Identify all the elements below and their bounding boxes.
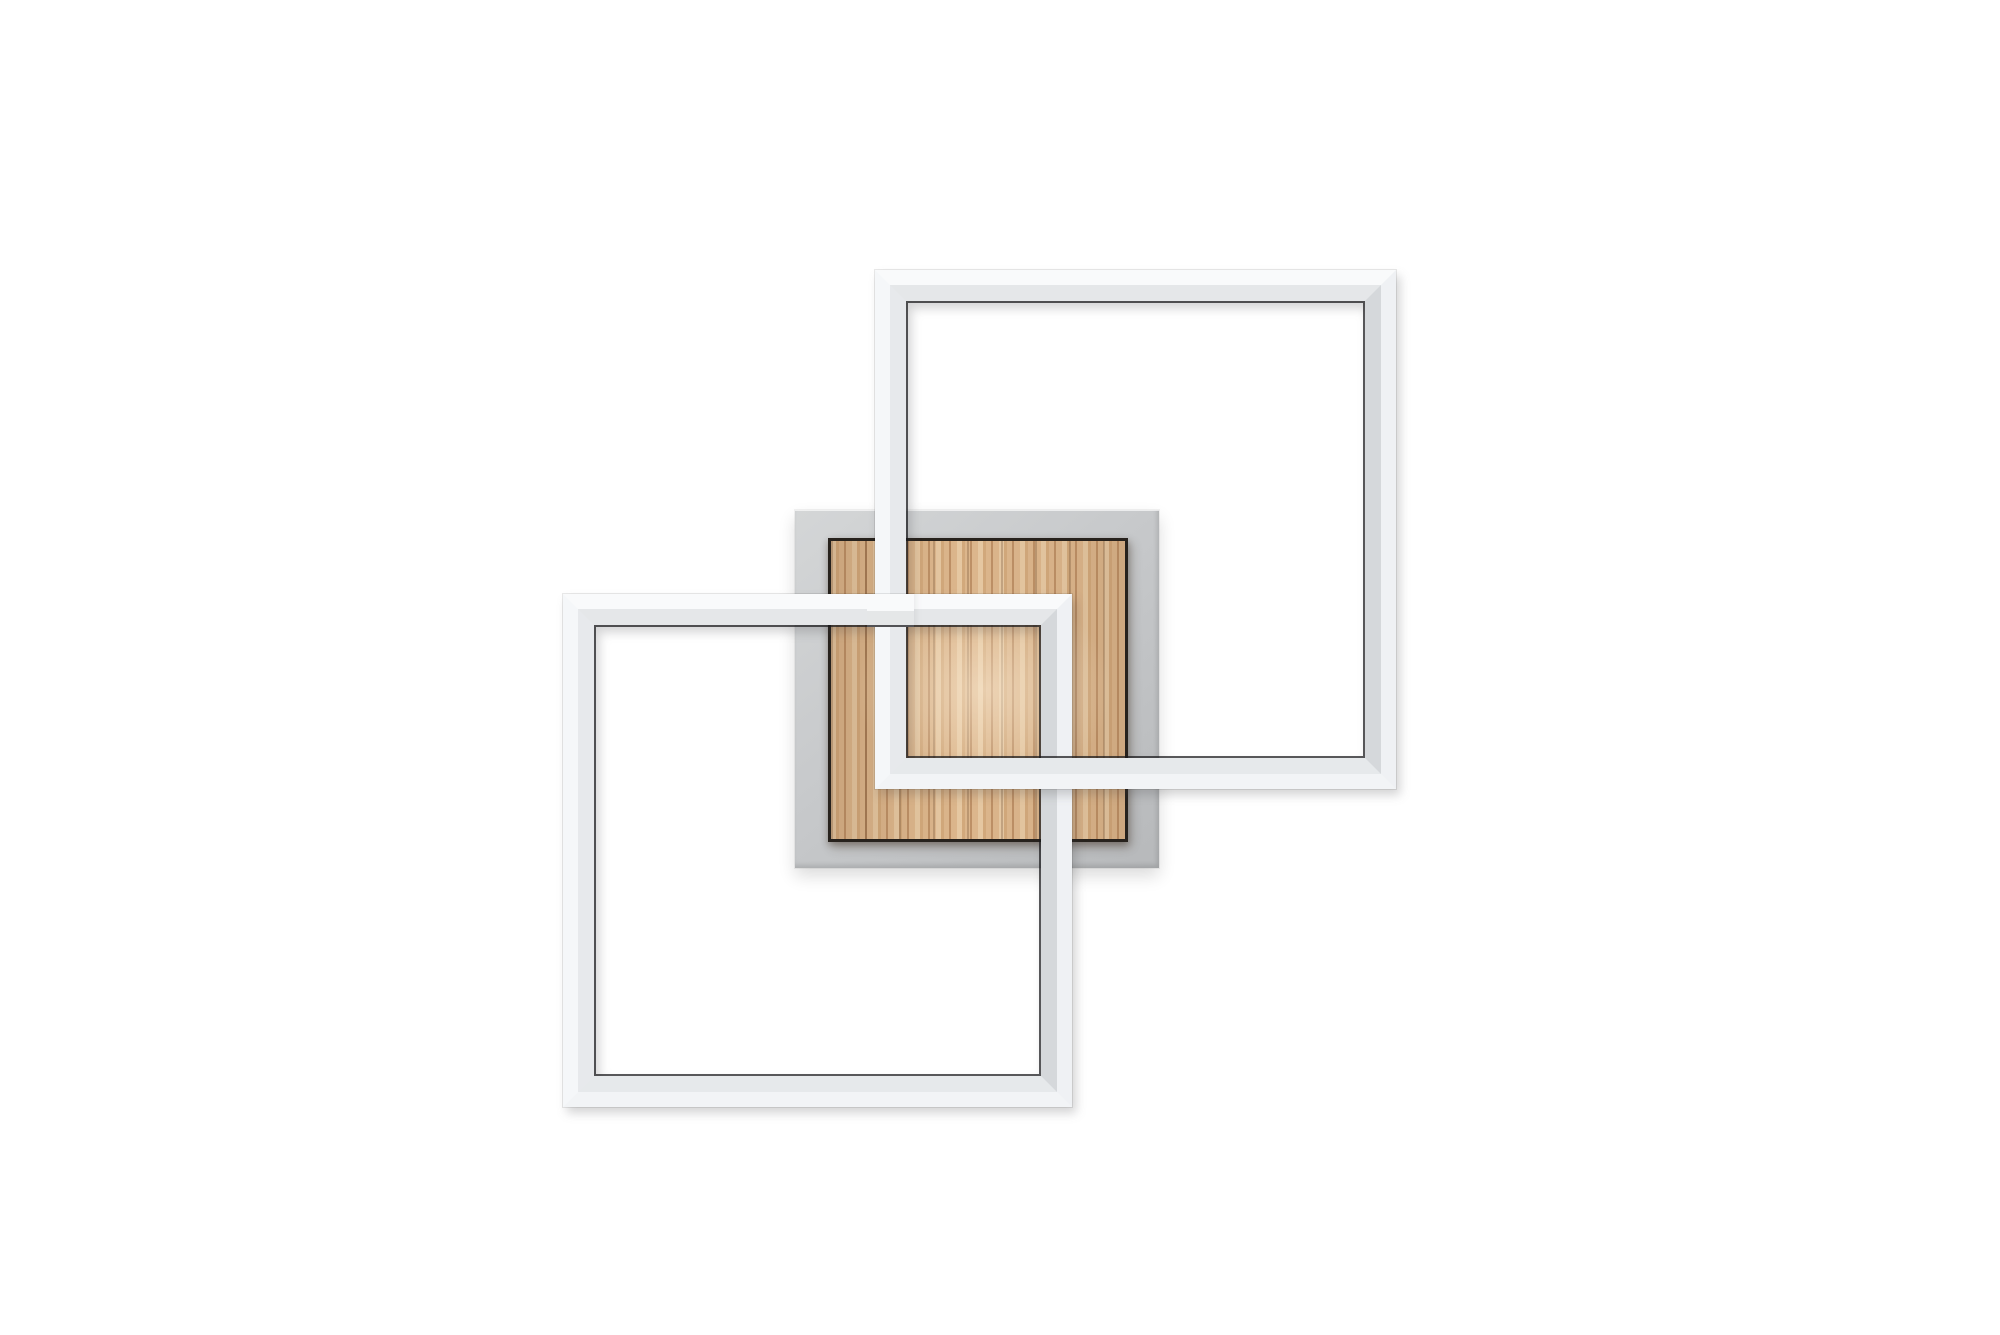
frame-weave-overlap-patch [867,594,914,627]
light-frame-upper-right [875,270,1396,789]
product-photo [0,0,2000,1335]
